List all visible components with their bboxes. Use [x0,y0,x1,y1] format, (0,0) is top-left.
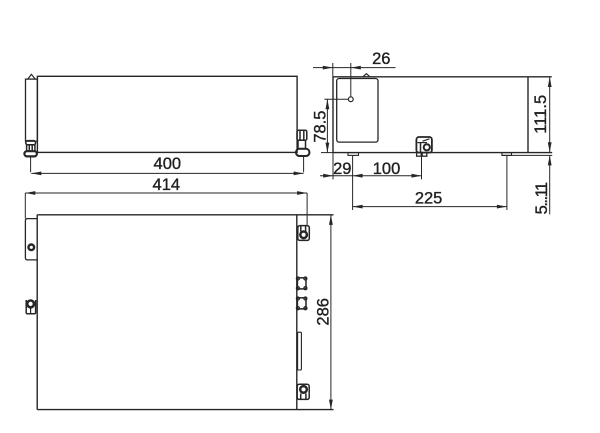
svg-text:286: 286 [315,298,333,326]
svg-text:225: 225 [415,189,443,207]
svg-text:111.5: 111.5 [532,95,550,134]
svg-text:78.5: 78.5 [311,111,329,143]
svg-text:100: 100 [373,160,401,178]
svg-text:29: 29 [333,160,351,178]
svg-text:5...11: 5...11 [533,182,551,214]
svg-text:26: 26 [372,50,390,68]
svg-text:414: 414 [153,176,181,194]
svg-text:400: 400 [154,155,182,173]
